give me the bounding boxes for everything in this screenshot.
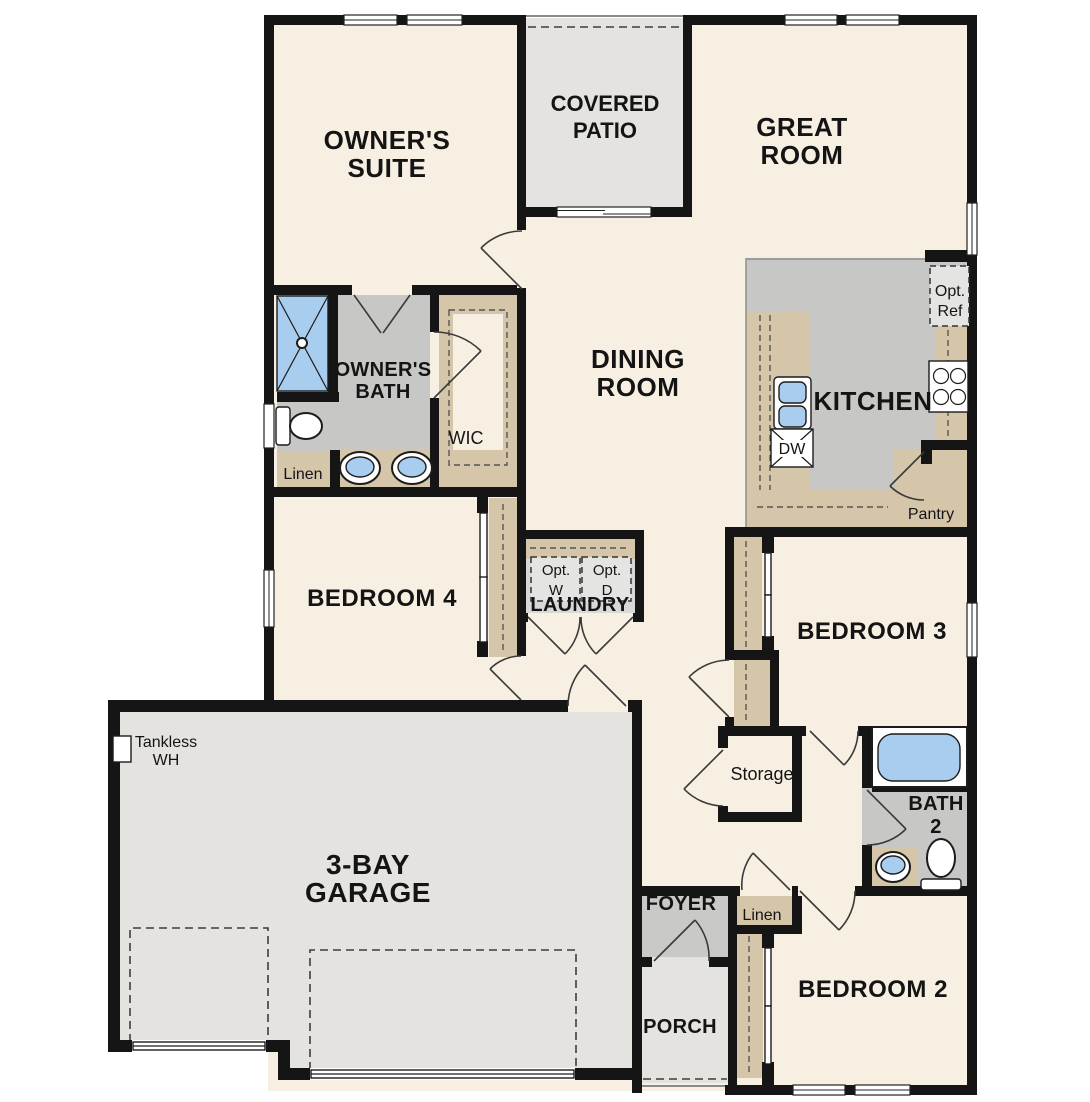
window: [846, 15, 899, 25]
label-bath2-1: BATH: [908, 793, 963, 815]
sliding-door: [557, 207, 651, 217]
stove: [929, 361, 968, 412]
window: [407, 15, 462, 25]
label-pantry: Pantry: [908, 506, 954, 523]
label-bath2-2: 2: [930, 816, 941, 838]
bath2-sink: [876, 852, 910, 882]
label-foyer: FOYER: [646, 893, 717, 915]
dishwasher-label: DW: [779, 441, 807, 458]
bedroom3-closet: [734, 537, 762, 652]
window: [264, 570, 274, 627]
window: [855, 1085, 910, 1095]
tankless-water-heater: [113, 736, 131, 762]
window: [967, 203, 977, 255]
kitchen-sink: [774, 377, 811, 429]
bypass-doors-bedroom4: [480, 513, 487, 642]
label-bedroom3: BEDROOM 3: [797, 618, 947, 645]
label-tankless-1: Tankless: [135, 734, 197, 751]
floor-plan-canvas: DW Opt. Ref Opt. W Opt. D: [0, 0, 1090, 1102]
label-storage: Storage: [730, 764, 793, 784]
label-great-room-2: ROOM: [761, 140, 844, 170]
label-owners-bath-2: BATH: [355, 381, 410, 403]
label-linen-owners: Linen: [283, 466, 322, 483]
window: [793, 1085, 845, 1095]
garage-door-single: [133, 1042, 265, 1050]
floor-plan: DW Opt. Ref Opt. W Opt. D: [0, 0, 1090, 1102]
bathtub: [872, 727, 967, 787]
label-laundry: LAUNDRY: [530, 594, 629, 616]
window: [967, 603, 977, 657]
bypass-doors-bedroom2: [765, 948, 771, 1064]
window: [785, 15, 837, 25]
bypass-doors-bedroom3: [765, 553, 771, 637]
label-tankless-2: WH: [153, 752, 180, 769]
label-owners-suite-1: OWNER'S: [324, 125, 451, 155]
shower: [277, 296, 328, 391]
opt-refrigerator: Opt. Ref: [930, 266, 969, 326]
kitchen-counter-bottom: [746, 490, 893, 527]
toilet-niche: [264, 404, 274, 448]
label-garage-1: 3-BAY: [326, 849, 410, 880]
label-dining-room-2: ROOM: [597, 372, 680, 402]
hall-closet: [734, 660, 770, 726]
label-dining-room-1: DINING: [591, 344, 685, 374]
opt-ref-label-2: Ref: [938, 303, 963, 320]
label-owners-bath-1: OWNER'S: [335, 359, 432, 381]
opt-washer-label-1: Opt.: [542, 562, 570, 579]
window: [344, 15, 397, 25]
label-bedroom2: BEDROOM 2: [798, 976, 948, 1003]
label-garage-2: GARAGE: [305, 877, 431, 908]
label-linen-hall: Linen: [742, 907, 781, 924]
label-bedroom4: BEDROOM 4: [307, 585, 457, 612]
dishwasher: DW: [771, 429, 813, 467]
opt-dryer-label-1: Opt.: [593, 562, 621, 579]
label-porch: PORCH: [643, 1016, 717, 1038]
label-covered-patio-2: PATIO: [573, 118, 637, 143]
bedroom2-closet: [737, 932, 763, 1078]
label-kitchen: KITCHEN: [813, 386, 932, 416]
laundry-counter: [526, 539, 635, 559]
opt-ref-label-1: Opt.: [935, 283, 965, 300]
label-great-room-1: GREAT: [756, 112, 848, 142]
label-owners-suite-2: SUITE: [347, 153, 426, 183]
garage-door-double: [311, 1070, 574, 1078]
room-fills: [120, 18, 973, 1091]
label-covered-patio-1: COVERED: [551, 91, 660, 116]
label-wic: WIC: [449, 428, 484, 448]
